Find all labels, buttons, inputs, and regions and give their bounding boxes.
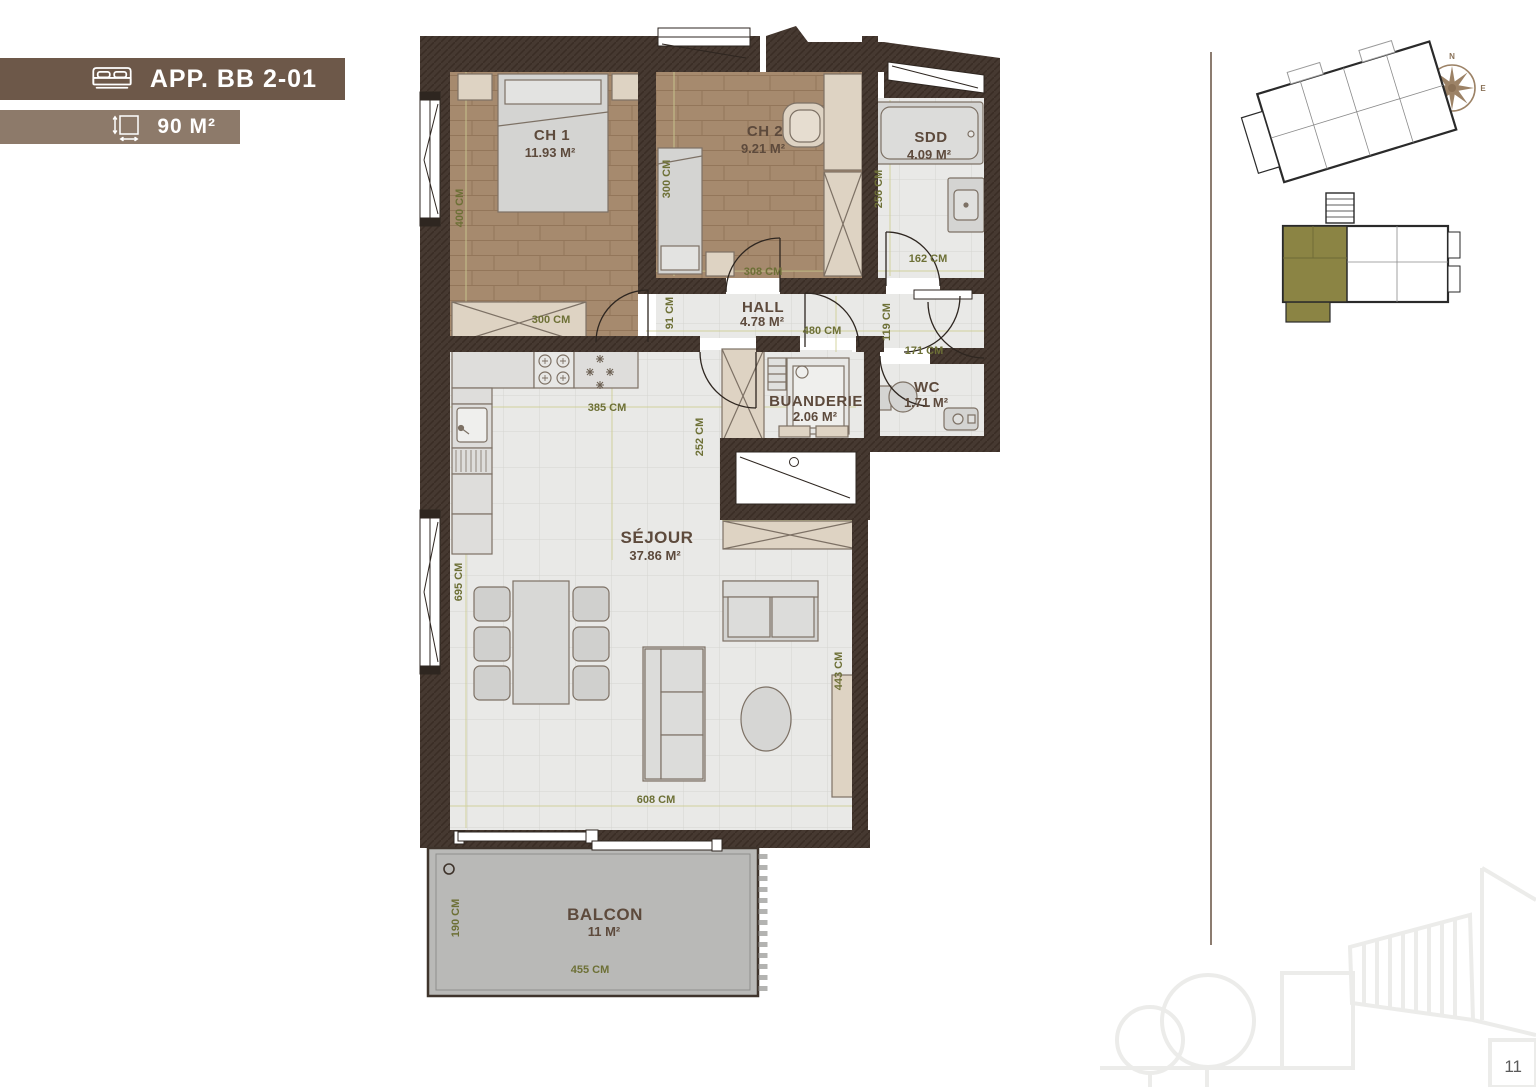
room-area-ch2: 9.21 M² — [741, 141, 786, 156]
entry-floor — [884, 294, 984, 348]
dim-entry-width: 171 CM — [905, 345, 944, 357]
area-icon — [111, 112, 143, 142]
room-label-ch1: CH 1 — [534, 127, 570, 144]
cabinet — [779, 426, 810, 437]
room-area-wc: 1.71 M² — [904, 395, 949, 410]
key-plan-lower-building — [1283, 226, 1460, 322]
dim-ch1-height: 400 CM — [454, 189, 466, 228]
room-area-hall: 4.78 M² — [740, 314, 785, 329]
dim-sejour-right: 443 CM — [833, 652, 845, 691]
divider-line — [1210, 52, 1212, 945]
apartment-badge: APP. BB 2-01 — [0, 58, 345, 100]
compass-n: N — [1449, 52, 1455, 61]
room-label-sdd: SDD — [914, 129, 947, 146]
wardrobe — [722, 349, 764, 443]
dim-kitchen-height: 252 CM — [694, 418, 706, 457]
highlighted-apartment — [1283, 226, 1347, 302]
washbasin — [948, 178, 984, 232]
stove — [534, 350, 574, 388]
sliding-door — [592, 841, 720, 850]
cabinet — [816, 426, 848, 437]
page-number: 11 — [1504, 1057, 1522, 1077]
floor-plan: CH 1 11.93 M² CH 2 9.21 M² SDD 4.09 M² H… — [415, 25, 1020, 1015]
dim-sdd-width: 162 CM — [909, 253, 948, 265]
loveseat — [723, 581, 818, 641]
room-area-sejour: 37.86 M² — [629, 548, 681, 563]
compass-e: E — [1480, 84, 1486, 93]
dim-hall-width: 480 CM — [803, 325, 842, 337]
dim-sejour-width: 608 CM — [637, 794, 676, 806]
room-area-buanderie: 2.06 M² — [793, 409, 838, 424]
dim-balcon-width: 455 CM — [571, 964, 610, 976]
sliding-door — [458, 832, 594, 841]
key-plan-stairs — [1326, 193, 1354, 223]
room-label-wc: WC — [914, 379, 940, 396]
wardrobe — [723, 521, 857, 549]
decorative-watermark — [1040, 855, 1536, 1087]
rug — [741, 687, 791, 751]
highlighted-balcony — [1286, 302, 1330, 322]
armchair — [783, 103, 827, 147]
dim-balcon-height: 190 CM — [450, 899, 462, 938]
room-label-balcon: BALCON — [567, 905, 643, 924]
dim-hall-height: 91 CM — [664, 297, 676, 329]
dim-ch2-height: 300 CM — [661, 160, 673, 199]
dim-sejour-height: 695 CM — [453, 563, 465, 602]
entry-door-leaf — [914, 290, 972, 299]
key-plan-upper-building — [1240, 35, 1456, 189]
key-plan: N E S W — [1240, 35, 1496, 335]
dining-table-set — [474, 581, 609, 704]
kitchen-sink — [452, 404, 492, 448]
apartment-label: APP. BB 2-01 — [150, 65, 317, 94]
room-area-sdd: 4.09 M² — [907, 147, 952, 162]
dim-sdd-height: 256 CM — [873, 170, 885, 209]
nightstand — [458, 74, 492, 100]
area-label: 90 M² — [157, 115, 216, 139]
dim-entry-height: 119 CM — [881, 303, 893, 341]
bed-icon — [90, 64, 134, 94]
floorplan-page: APP. BB 2-01 90 M² — [0, 0, 1536, 1087]
closet — [824, 74, 862, 170]
room-label-ch2: CH 2 — [747, 123, 783, 140]
room-area-ch1: 11.93 M² — [525, 145, 576, 160]
dim-kitchen-width: 385 CM — [588, 402, 627, 414]
sofa — [643, 647, 705, 781]
drainer — [452, 448, 492, 474]
room-label-buanderie: BUANDERIE — [769, 393, 863, 410]
small-basin — [944, 408, 978, 430]
shelf — [768, 358, 786, 390]
wardrobe — [824, 172, 862, 276]
dim-ch1-closet: 300 CM — [532, 314, 571, 326]
dim-ch2-width: 308 CM — [744, 266, 783, 278]
room-label-sejour: SÉJOUR — [621, 528, 694, 547]
room-area-balcon: 11 M² — [588, 924, 621, 939]
area-badge: 90 M² — [0, 110, 240, 144]
